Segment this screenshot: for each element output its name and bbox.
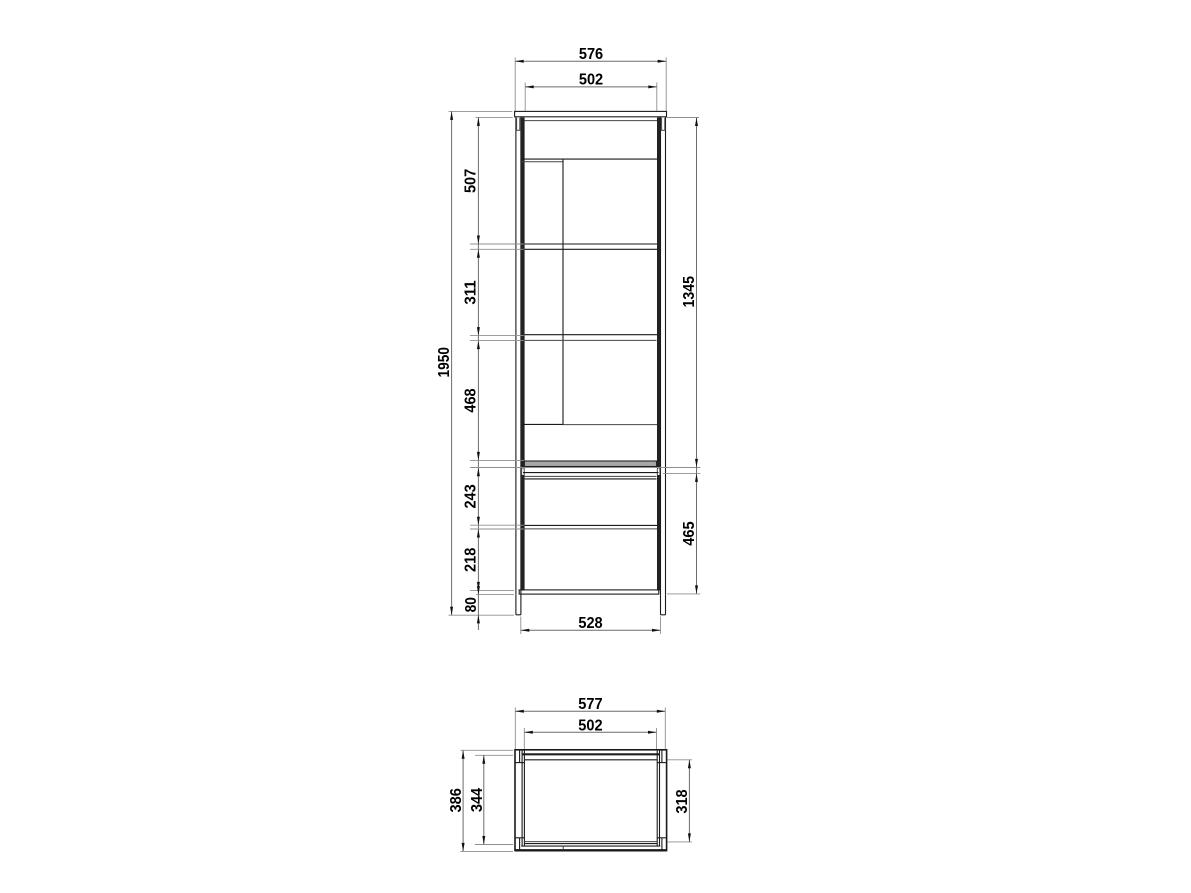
svg-text:318: 318: [674, 789, 691, 814]
svg-text:386: 386: [448, 788, 465, 813]
svg-text:1345: 1345: [681, 276, 698, 308]
svg-text:502: 502: [579, 72, 603, 89]
svg-text:576: 576: [579, 46, 604, 63]
svg-text:528: 528: [578, 615, 603, 632]
svg-text:502: 502: [578, 717, 602, 734]
svg-text:311: 311: [463, 280, 480, 305]
svg-text:507: 507: [463, 169, 480, 193]
svg-text:577: 577: [578, 696, 602, 713]
svg-text:465: 465: [681, 521, 698, 546]
svg-text:344: 344: [469, 788, 486, 813]
svg-text:1950: 1950: [436, 347, 453, 378]
svg-text:80: 80: [463, 597, 480, 612]
svg-text:218: 218: [463, 547, 480, 572]
svg-text:468: 468: [463, 388, 480, 413]
svg-text:243: 243: [463, 484, 480, 509]
